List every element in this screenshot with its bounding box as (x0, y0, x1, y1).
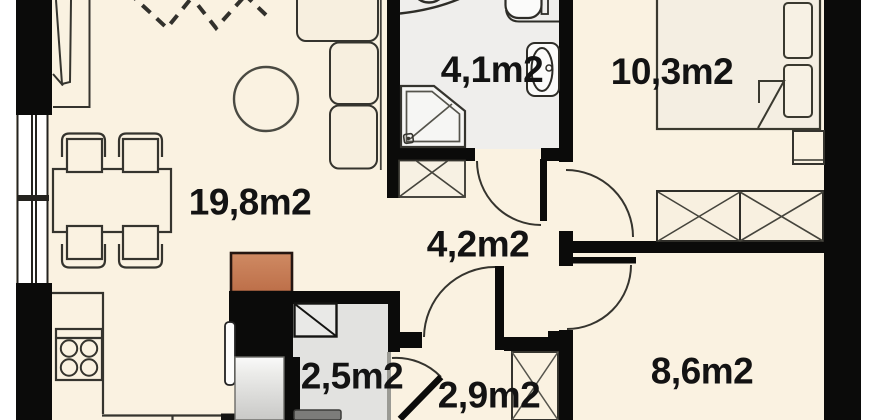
svg-text:8,6m2: 8,6m2 (651, 351, 753, 392)
svg-text:19,8m2: 19,8m2 (189, 182, 312, 223)
svg-text:2,9m2: 2,9m2 (438, 375, 540, 416)
svg-text:4,1m2: 4,1m2 (441, 49, 543, 90)
svg-text:10,3m2: 10,3m2 (611, 51, 734, 92)
svg-text:2,5m2: 2,5m2 (301, 356, 403, 397)
svg-text:4,2m2: 4,2m2 (427, 224, 529, 265)
